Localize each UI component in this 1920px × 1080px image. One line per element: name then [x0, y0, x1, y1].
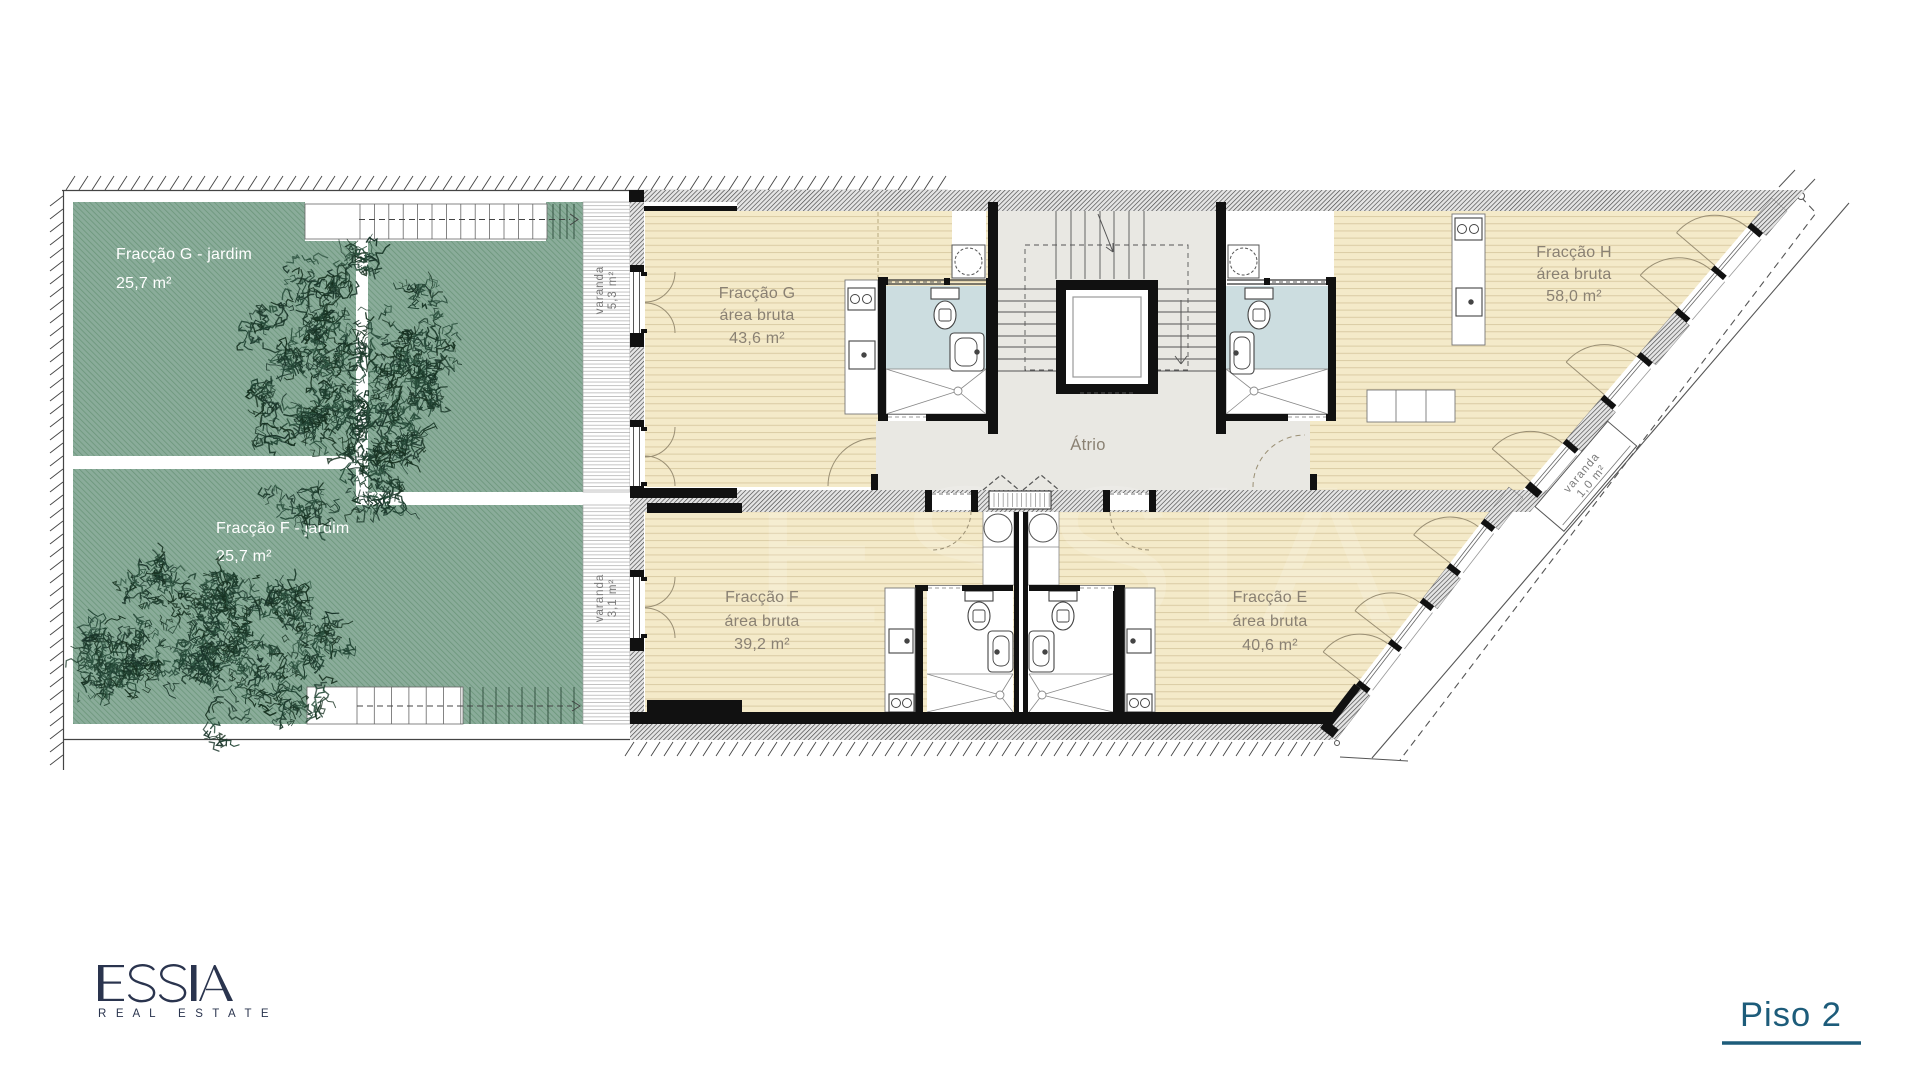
- svg-text:25,7 m²: 25,7 m²: [216, 548, 272, 565]
- svg-text:Piso 2: Piso 2: [1740, 996, 1842, 1034]
- svg-text:Fracção H: Fracção H: [1536, 244, 1612, 261]
- svg-text:3,1 m²: 3,1 m²: [607, 579, 619, 618]
- svg-text:área bruta: área bruta: [1233, 613, 1308, 630]
- svg-text:varanda: varanda: [594, 266, 606, 315]
- svg-text:25,7 m²: 25,7 m²: [116, 275, 172, 292]
- svg-text:58,0 m²: 58,0 m²: [1546, 288, 1602, 305]
- svg-text:Fracção G - jardim: Fracção G - jardim: [116, 246, 252, 263]
- svg-text:Fracção E: Fracção E: [1233, 589, 1308, 606]
- svg-text:varanda: varanda: [594, 574, 606, 623]
- svg-text:R E A L E S T A T E: R E A L E S T A T E: [98, 1008, 272, 1020]
- svg-text:5,3 m²: 5,3 m²: [607, 271, 619, 310]
- svg-text:40,6 m²: 40,6 m²: [1242, 637, 1298, 654]
- svg-text:área bruta: área bruta: [720, 307, 795, 324]
- svg-text:Fracção G: Fracção G: [719, 285, 796, 302]
- svg-text:43,6 m²: 43,6 m²: [729, 330, 785, 347]
- svg-text:39,2 m²: 39,2 m²: [734, 636, 790, 653]
- svg-text:Fracção F - jardim: Fracção F - jardim: [216, 520, 349, 537]
- svg-text:área bruta: área bruta: [1537, 266, 1612, 283]
- svg-text:área bruta: área bruta: [725, 613, 800, 630]
- svg-text:Átrio: Átrio: [1070, 435, 1105, 454]
- svg-text:Fracção F: Fracção F: [725, 589, 799, 606]
